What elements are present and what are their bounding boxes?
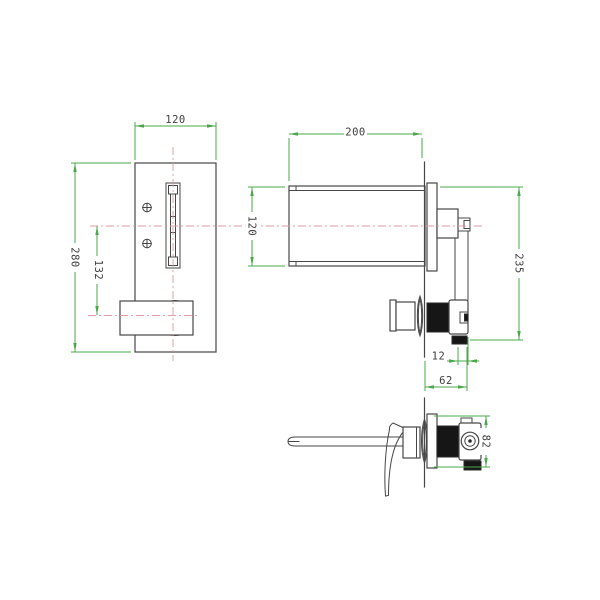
front-view (120, 163, 216, 352)
spout-blade (288, 437, 403, 446)
body-block (437, 209, 458, 238)
arrow-icon (449, 359, 458, 362)
cartridge-block (427, 303, 449, 332)
arrow-icon (425, 385, 434, 388)
arrow-icon (73, 163, 76, 172)
arrow-icon (413, 132, 422, 135)
valve-side (390, 296, 468, 344)
valve-port-plug (465, 314, 469, 321)
dim-plate-width: 120 (135, 114, 216, 160)
dim-spout-height: 120 (246, 187, 286, 266)
arrow-icon (250, 187, 253, 196)
arrow-icon (95, 226, 98, 235)
dim-spout-height-label: 120 (246, 216, 258, 236)
mounting-flange (427, 183, 437, 271)
bottom-connector (464, 461, 481, 470)
dim-plate-height-label: 280 (69, 247, 81, 267)
handle-front (120, 301, 193, 335)
arrow-icon (517, 187, 520, 196)
dim-valve-depth-label: 62 (439, 375, 453, 387)
handle-knob-body (396, 302, 415, 330)
arrow-icon (207, 124, 216, 127)
dim-spout-to-handle: 132 (92, 226, 105, 315)
technical-drawing-canvas: 120 280 132 200 (0, 0, 600, 600)
lever-handle (385, 423, 404, 496)
dim-spout-length-label: 200 (345, 127, 365, 139)
arrow-icon (95, 306, 98, 315)
arrow-icon (135, 124, 144, 127)
dim-valve-height-label: 82 (480, 435, 492, 449)
inlet-body (437, 209, 470, 301)
inlet-port-center (468, 439, 472, 443)
arrow-icon (289, 132, 298, 135)
side-view (289, 162, 470, 357)
dim-plate-width-label: 120 (165, 114, 185, 126)
dim-connector-width-label: 12 (432, 351, 446, 363)
arrow-icon (73, 343, 76, 352)
handle-knob-end (390, 300, 396, 331)
arrow-icon (468, 359, 477, 362)
dim-spout-length: 200 (289, 127, 422, 182)
spout-blade-outline (288, 437, 403, 446)
arrow-icon (250, 257, 253, 266)
cartridge-block (437, 426, 459, 457)
drawing-svg: 120 280 132 200 (0, 0, 600, 600)
arrow-icon (458, 385, 467, 388)
dim-spout-to-handle-label: 132 (92, 260, 104, 280)
inlet-connector-inner (464, 221, 470, 229)
valve-top-tab (461, 418, 472, 423)
lever-base (403, 427, 420, 458)
dim-overall-height-label: 235 (513, 253, 525, 273)
valve-escutcheon-inner (418, 299, 421, 333)
arrow-icon (517, 331, 520, 340)
arrow-icon (484, 416, 487, 425)
bottom-connector (452, 336, 467, 344)
mounting-flange (427, 414, 437, 468)
arrow-icon (484, 458, 487, 467)
assembled-view (288, 398, 481, 496)
